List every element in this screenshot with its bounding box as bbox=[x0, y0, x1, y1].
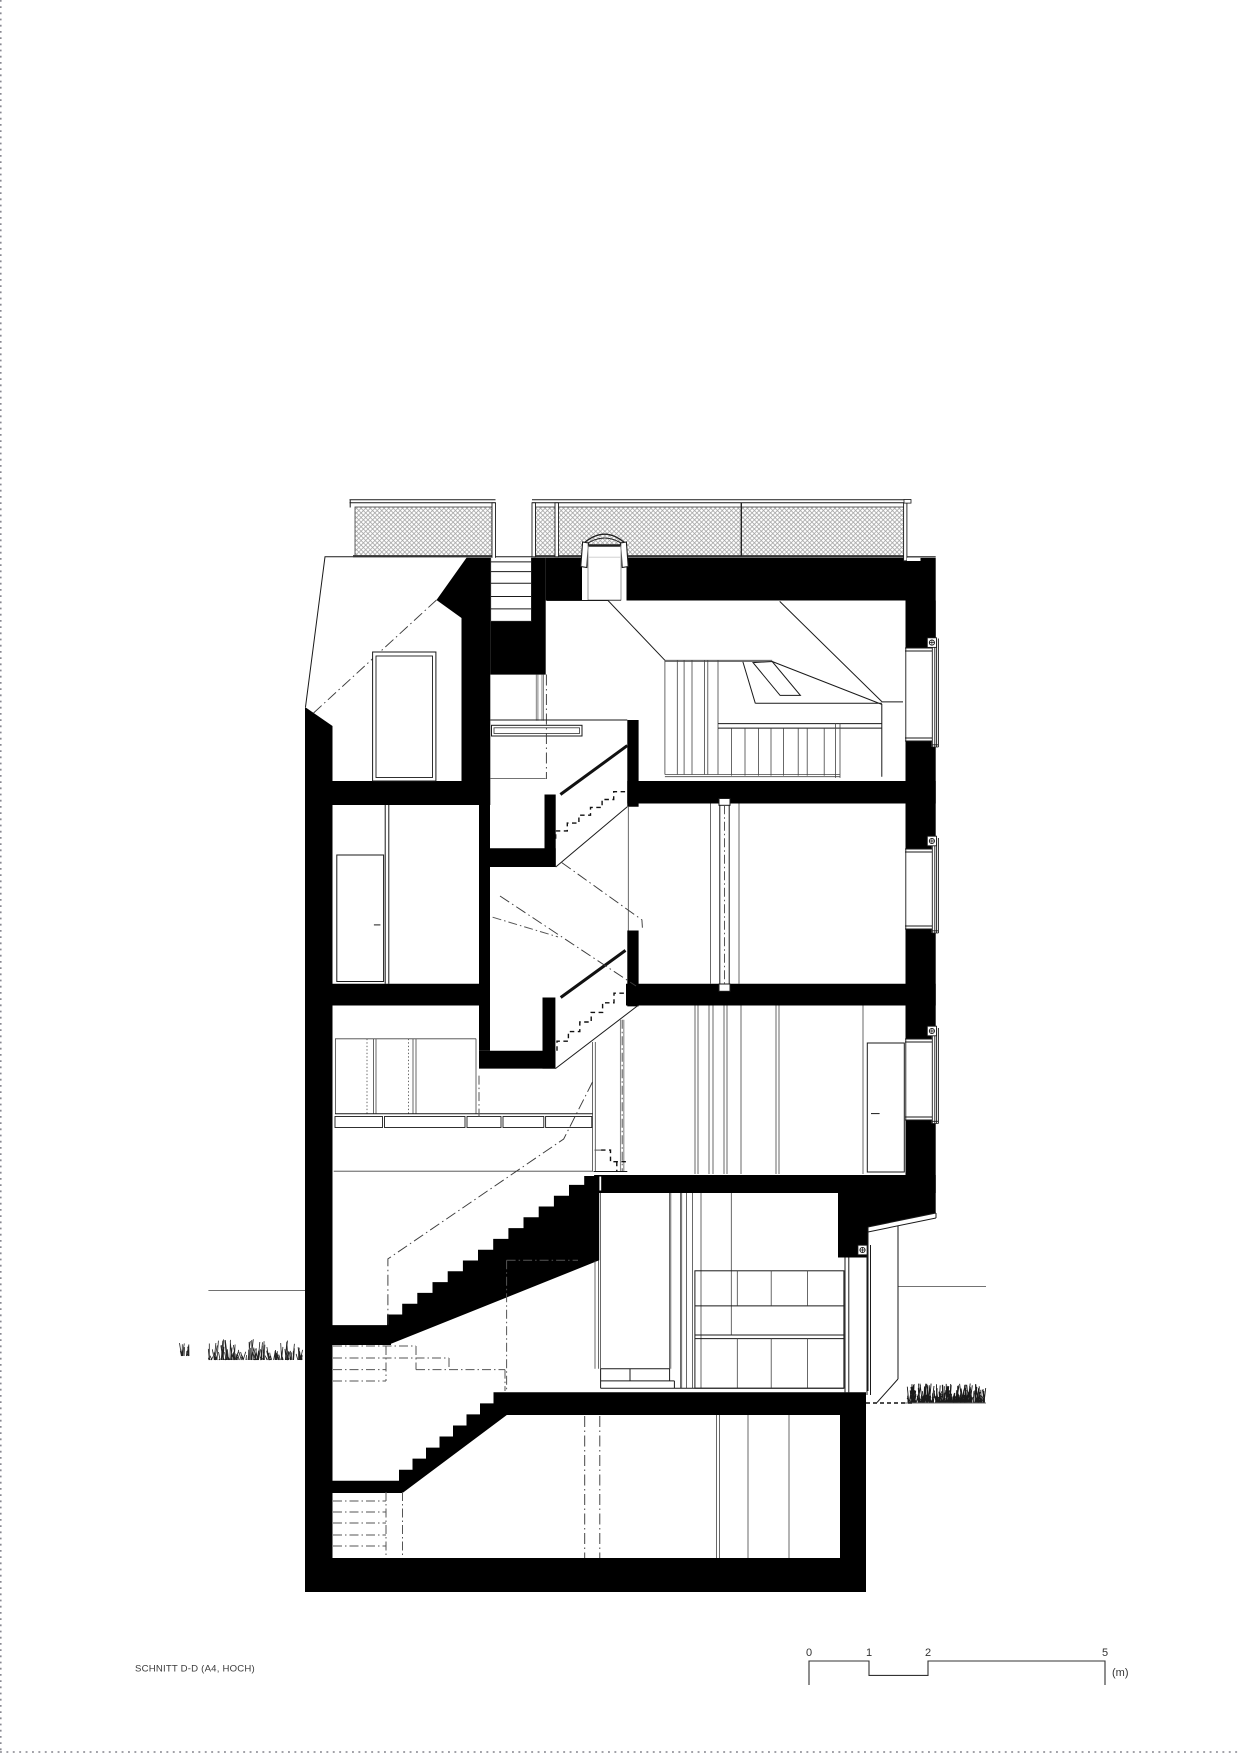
svg-text:1: 1 bbox=[866, 1647, 872, 1659]
svg-text:5: 5 bbox=[1102, 1647, 1108, 1659]
svg-text:2: 2 bbox=[925, 1647, 931, 1659]
svg-text:0: 0 bbox=[806, 1647, 812, 1659]
svg-text:(m): (m) bbox=[1112, 1667, 1129, 1679]
svg-text:SCHNITT D-D (A4, HOCH): SCHNITT D-D (A4, HOCH) bbox=[135, 1664, 255, 1675]
